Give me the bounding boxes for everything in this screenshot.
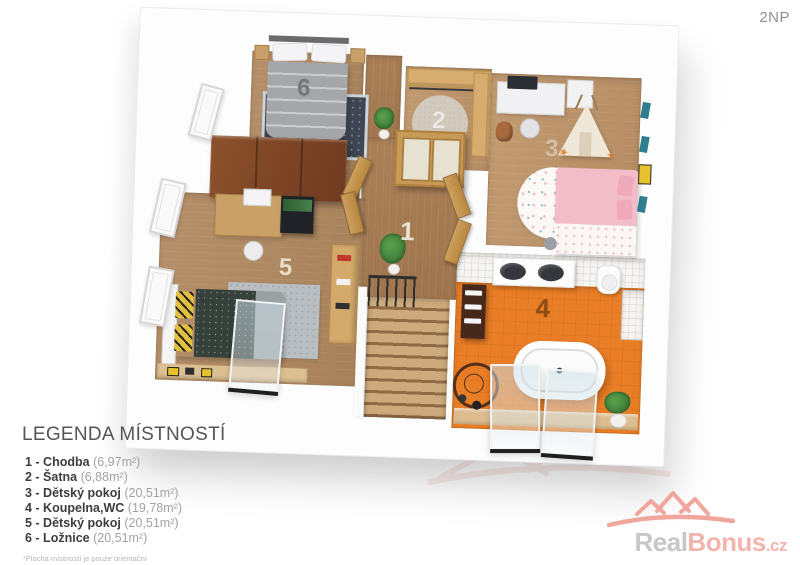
realbonus-logo: RealBonus.cz — [573, 483, 787, 555]
teepee-door — [579, 132, 592, 156]
floor-plan: 6 2 3 — [139, 21, 665, 453]
room-6-number: 6 — [297, 76, 311, 100]
logo-bonus: Bonus — [687, 527, 765, 557]
legend-title: LEGENDA MÍSTNOSTÍ — [22, 424, 226, 446]
pillow — [311, 43, 347, 63]
room-2-shelf-side — [471, 72, 492, 157]
yellow-pillow — [175, 291, 194, 319]
glass-door — [228, 299, 286, 393]
vanity-sink — [500, 262, 527, 280]
toilet — [596, 265, 621, 295]
legend-entry: 4 - Koupelna,WC (19,78m²) — [25, 501, 226, 516]
room-3-number: 3 — [545, 137, 559, 161]
closet-door-pane — [401, 137, 432, 182]
nightstand — [350, 48, 366, 64]
toy-car — [638, 164, 652, 184]
toilet-seat — [601, 274, 618, 292]
legend-entry: 2 - Šatna (6,88m²) — [25, 470, 226, 485]
dotted-sheet — [554, 223, 637, 256]
vanity-sink — [538, 264, 565, 282]
legend: LEGENDA MÍSTNOSTÍ 1 - Chodba (6,97m²) 2 … — [22, 424, 226, 563]
towel — [465, 290, 482, 296]
legend-entry-area: (20,51m²) — [124, 516, 178, 530]
legend-entry: 1 - Chodba (6,97m²) — [25, 455, 226, 470]
room-6-wardrobe — [209, 135, 347, 202]
yellow-pillow — [174, 324, 193, 352]
page: 2NP 6 — [0, 0, 800, 565]
bathroom-shelf — [461, 284, 487, 339]
staircase — [364, 297, 450, 420]
legend-entry-area: (19,78m²) — [128, 501, 182, 515]
room-2-number: 2 — [432, 109, 446, 133]
realbonus-logo-text: RealBonus.cz — [635, 529, 788, 555]
legend-entry-label: 6 - Ložnice — [25, 531, 90, 545]
room-4-number: 4 — [535, 295, 550, 321]
towel — [465, 304, 482, 310]
legend-entry-label: 2 - Šatna — [25, 470, 77, 484]
legend-entry: 3 - Dětský pokoj (20,51m²) — [25, 486, 226, 501]
papasan-inner — [464, 373, 485, 394]
bathroom-vanity — [492, 257, 575, 288]
room-5-number: 5 — [278, 256, 292, 280]
towel — [464, 318, 481, 324]
room-5-monitor — [243, 188, 272, 206]
glass-base — [490, 449, 540, 453]
legend-entry: 6 - Ložnice (20,51m²) — [25, 531, 226, 546]
legend-entry-label: 5 - Dětský pokoj — [25, 516, 121, 530]
legend-entry-area: (20,51m²) — [124, 486, 178, 500]
toy — [167, 367, 179, 376]
legend-entry-label: 1 - Chodba — [25, 455, 90, 469]
pillow — [617, 199, 633, 220]
wardrobe-seam — [299, 138, 303, 200]
pillow — [272, 43, 307, 62]
stair-railing — [368, 275, 417, 308]
aquarium-cabinet — [280, 196, 314, 234]
floor-label: 2NP — [759, 9, 790, 26]
bathroom-tile-column — [621, 290, 645, 341]
legend-entry-area: (6,88m²) — [81, 470, 128, 484]
logo-real: Real — [635, 527, 688, 557]
room-3-bed — [554, 167, 639, 256]
toy — [201, 368, 212, 377]
legend-entry: 5 - Dětský pokoj (20,51m²) — [25, 516, 226, 531]
realbonus-roofs-icon — [607, 487, 737, 529]
pillow — [617, 175, 635, 197]
teddy-bear — [495, 121, 513, 142]
book — [337, 255, 351, 261]
book — [335, 303, 349, 309]
legend-entry-area: (6,97m²) — [93, 455, 140, 469]
toy — [185, 368, 194, 375]
nightstand — [254, 45, 270, 61]
room-3-monitor — [507, 76, 537, 90]
legend-footnote: *Plocha místností je pouze orientační — [23, 554, 226, 563]
book — [336, 279, 350, 285]
legend-entry-label: 3 - Dětský pokoj — [25, 486, 121, 500]
glass-panel — [541, 368, 599, 457]
legend-entry-label: 4 - Koupelna,WC — [25, 501, 124, 515]
room-1-number: 1 — [400, 218, 415, 244]
room-5-bookshelf — [328, 244, 359, 345]
logo-tld: .cz — [766, 536, 787, 555]
glass-panel — [490, 364, 540, 450]
legend-entry-area: (20,51m²) — [93, 531, 147, 545]
aquarium — [283, 199, 312, 212]
